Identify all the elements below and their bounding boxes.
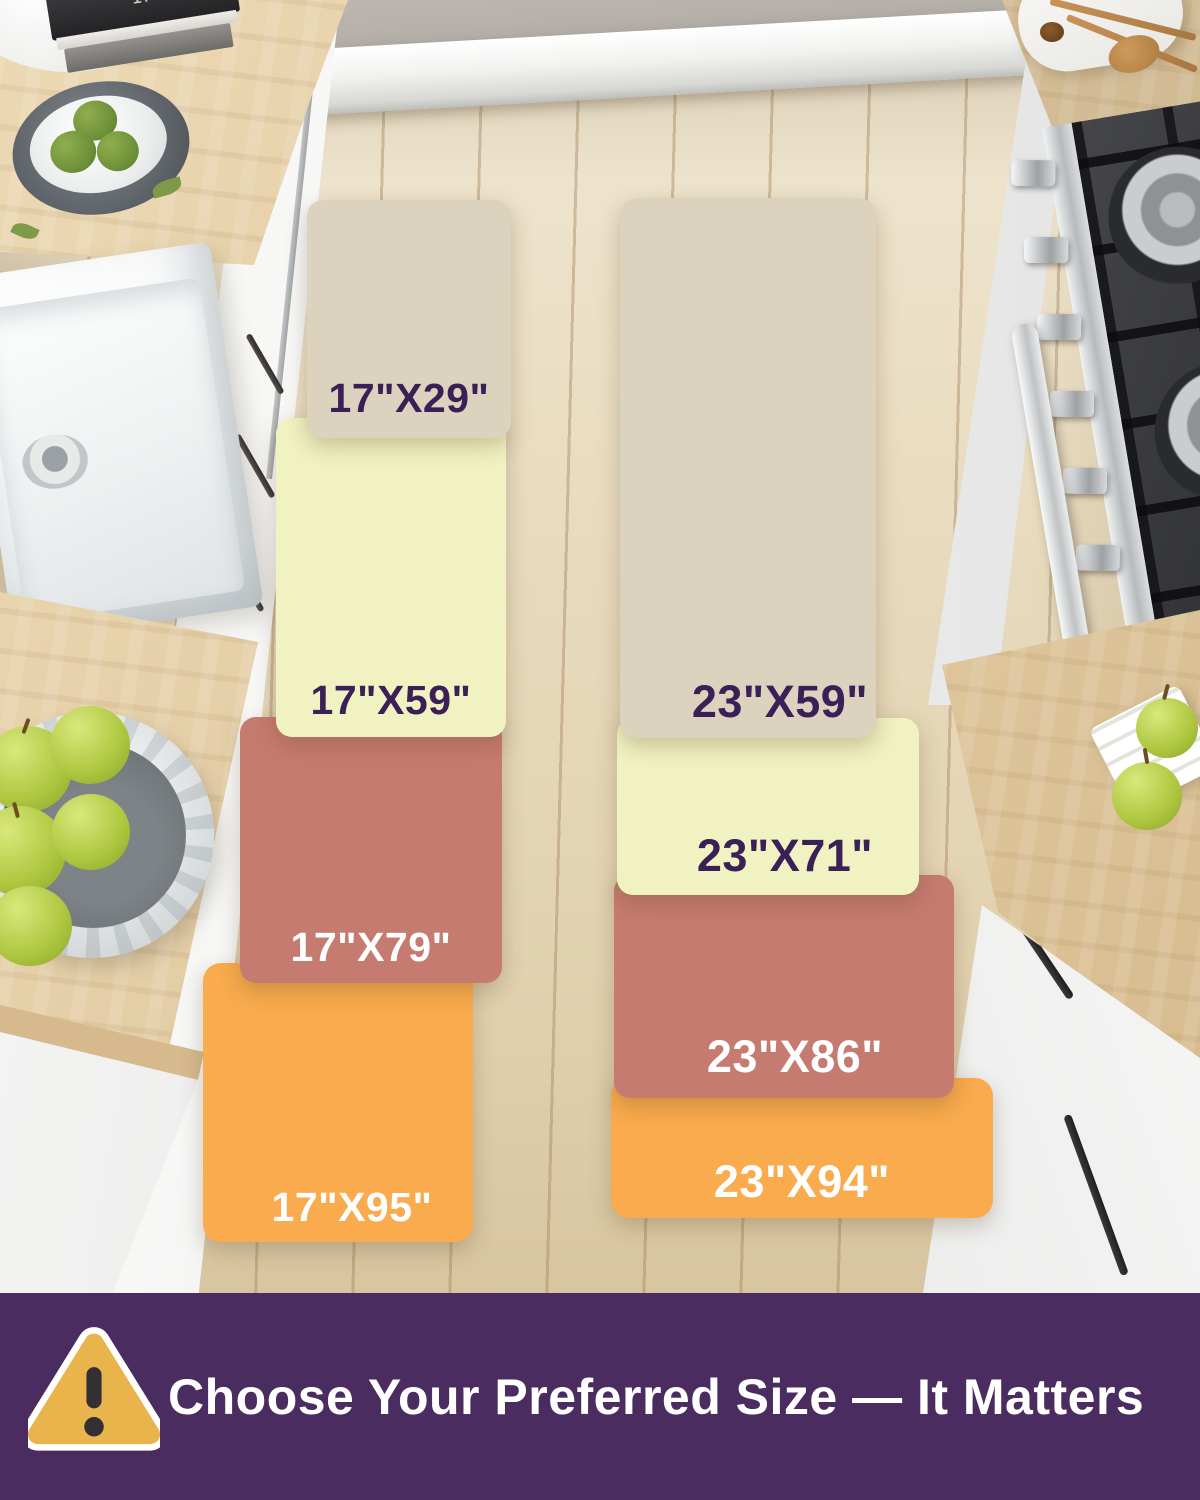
mat-size-label: 17"X29": [307, 375, 511, 422]
plate-with-limes: [2, 68, 200, 229]
cabinet-handle: [1063, 1114, 1129, 1276]
mat-17x59: 17"X59": [276, 418, 506, 737]
mat-17x29: 17"X29": [307, 200, 511, 438]
burner: [1098, 136, 1200, 297]
burner: [1144, 351, 1200, 512]
stove-knob: [1063, 468, 1107, 494]
mat-size-label: 23"X59": [620, 676, 876, 728]
mat-size-label: 23"X71": [617, 830, 919, 882]
stove-knob: [1076, 545, 1120, 571]
mat-23x71: 23"X71": [617, 718, 919, 895]
product-size-infographic: MAKING IT: [0, 0, 1200, 1500]
stove-knob: [1011, 160, 1055, 186]
stove-knob: [1037, 314, 1081, 340]
mat-size-label: 17"X79": [240, 924, 502, 971]
green-apple: [52, 794, 130, 870]
mat-size-label: 23"X86": [614, 1031, 954, 1083]
mat-17x95: 17"X95": [203, 963, 473, 1242]
mat-23x94: 23"X94": [611, 1078, 993, 1218]
mat-23x59: 23"X59": [620, 198, 876, 738]
stove-knob: [1024, 237, 1068, 263]
stove-knob: [1050, 391, 1094, 417]
banner-text: Choose Your Preferred Size — It Matters: [168, 1293, 1190, 1500]
mat-size-label: 17"X59": [276, 677, 506, 724]
mat-size-label: 17"X95": [203, 1184, 473, 1231]
green-apple: [50, 706, 130, 784]
warning-triangle-icon: [28, 1326, 160, 1456]
spice-cup: [1040, 22, 1064, 42]
mat-23x86: 23"X86": [614, 875, 954, 1098]
size-warning-banner: Choose Your Preferred Size — It Matters: [0, 1293, 1200, 1500]
mat-size-label: 23"X94": [611, 1156, 993, 1208]
apple-basket: [0, 690, 234, 972]
green-apple: [1112, 762, 1182, 830]
mat-17x79: 17"X79": [240, 717, 502, 983]
